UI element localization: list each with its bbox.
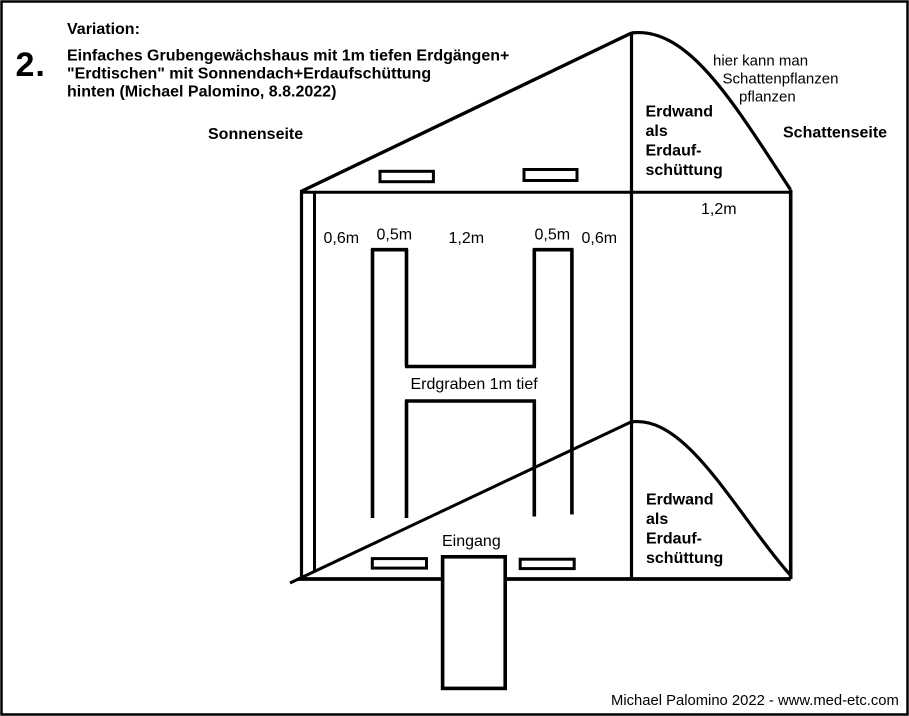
svg-text:Erdwand: Erdwand	[646, 104, 714, 121]
svg-text:schüttung: schüttung	[646, 550, 723, 567]
svg-text:hier kann man: hier kann man	[713, 53, 808, 70]
svg-text:"Erdtischen" mit Sonnendach+Er: "Erdtischen" mit Sonnendach+Erdaufschütt…	[67, 66, 431, 83]
svg-text:pflanzen: pflanzen	[739, 89, 796, 106]
svg-text:als: als	[646, 511, 668, 528]
svg-text:schüttung: schüttung	[646, 162, 723, 179]
svg-text:1,2m: 1,2m	[701, 201, 737, 218]
svg-text:0,6m: 0,6m	[582, 230, 618, 247]
svg-text:als: als	[646, 123, 668, 140]
svg-text:Eingang: Eingang	[442, 533, 501, 550]
svg-text:Schattenseite: Schattenseite	[783, 125, 887, 142]
svg-text:1,2m: 1,2m	[449, 230, 485, 247]
svg-text:2.: 2.	[16, 46, 46, 84]
svg-text:0,6m: 0,6m	[324, 230, 360, 247]
svg-text:Schattenpflanzen: Schattenpflanzen	[723, 71, 839, 88]
svg-text:Erdgraben 1m tief: Erdgraben 1m tief	[411, 376, 539, 393]
svg-text:Erdwand: Erdwand	[646, 492, 714, 509]
svg-text:Erdauf-: Erdauf-	[646, 143, 702, 160]
svg-text:Variation:: Variation:	[67, 21, 140, 38]
svg-text:0,5m: 0,5m	[535, 227, 571, 244]
svg-text:Sonnenseite: Sonnenseite	[208, 126, 303, 143]
svg-text:Michael Palomino 2022 - www.me: Michael Palomino 2022 - www.med-etc.com	[611, 693, 899, 709]
svg-text:hinten (Michael Palomino, 8.8.: hinten (Michael Palomino, 8.8.2022)	[67, 84, 336, 101]
svg-text:Einfaches Grubengewächshaus mi: Einfaches Grubengewächshaus mit 1m tiefe…	[67, 48, 509, 65]
svg-text:Erdauf-: Erdauf-	[646, 531, 702, 548]
svg-text:0,5m: 0,5m	[377, 227, 413, 244]
